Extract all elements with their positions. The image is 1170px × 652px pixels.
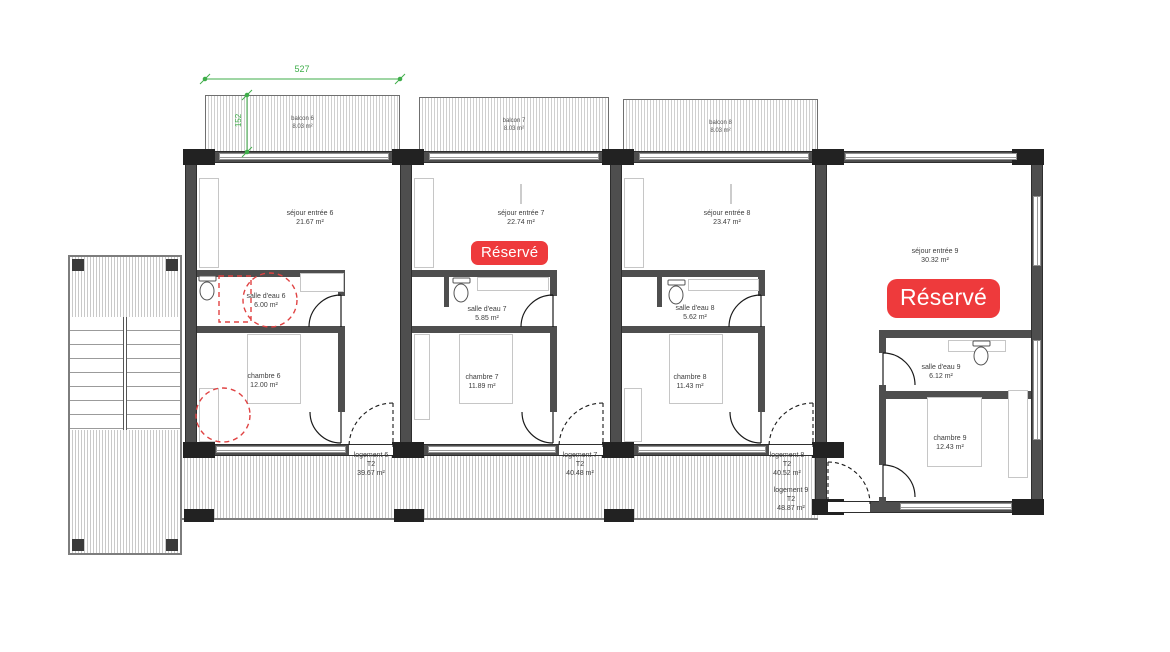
floor-plan: balcon 68.03 m² balcon 78.03 m² balcon 8… <box>0 0 1170 652</box>
unit-label-6: logement 6T239.67 m² <box>354 451 389 478</box>
unit-label-9: logement 9T248.87 m² <box>774 486 809 513</box>
stair-post <box>166 259 178 271</box>
reserved-badge-unit-9[interactable]: Réservé <box>887 279 1000 318</box>
unit-label-8: logement 8T240.52 m² <box>770 451 805 478</box>
window <box>428 446 556 453</box>
window <box>639 153 809 160</box>
window <box>638 446 766 453</box>
walkway-pier <box>604 509 634 522</box>
unit-label-7: logement 7T240.48 m² <box>563 451 598 478</box>
balcony-6-label: balcon 68.03 m² <box>291 116 314 131</box>
wall-pier <box>1012 499 1044 515</box>
balcony-8: balcon 88.03 m² <box>623 99 818 152</box>
balcony-7-label: balcon 78.03 m² <box>503 118 526 133</box>
window <box>429 153 599 160</box>
wall-pier <box>602 442 634 458</box>
unit-6-region[interactable] <box>197 163 400 444</box>
unit-7-region[interactable] <box>412 163 610 444</box>
balcony-8-label: balcon 88.03 m² <box>709 120 732 135</box>
stair-post <box>72 539 84 551</box>
stair-post <box>166 539 178 551</box>
dimension-height-label: 152 <box>234 114 243 127</box>
wall-party-7-8 <box>610 151 622 456</box>
stairwell <box>68 255 182 555</box>
window <box>845 153 1017 160</box>
walkway-pier <box>394 509 424 522</box>
unit-8-region[interactable] <box>622 163 815 444</box>
wall-pier <box>183 442 215 458</box>
balcony-7: balcon 78.03 m² <box>419 97 609 152</box>
reserved-badge-unit-7[interactable]: Réservé <box>471 241 548 265</box>
stair-stringer <box>123 317 127 430</box>
wall-left <box>185 151 197 456</box>
stair-landing-bottom <box>70 430 180 553</box>
window <box>1033 196 1041 266</box>
door-opening <box>828 502 870 512</box>
stair-landing-top <box>70 257 180 317</box>
wall-party-6-7 <box>400 151 412 456</box>
window <box>900 503 1012 510</box>
unit-9-region[interactable] <box>827 163 1031 501</box>
window <box>219 153 389 160</box>
dimension-width-label: 527 <box>294 64 309 74</box>
walkway <box>182 456 818 520</box>
wall-party-8-9 <box>815 151 827 513</box>
stair-post <box>72 259 84 271</box>
window <box>216 446 346 453</box>
wall-pier <box>392 442 424 458</box>
walkway-pier <box>184 509 214 522</box>
window <box>1033 340 1041 440</box>
